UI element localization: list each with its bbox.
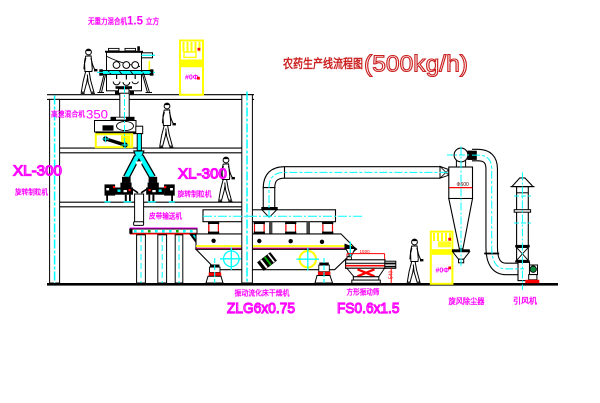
svg-text:无重力混合机: 无重力混合机 (87, 16, 127, 26)
svg-text:旋转制粒机: 旋转制粒机 (14, 187, 48, 197)
svg-text:350: 350 (86, 110, 108, 122)
svg-text:立方: 立方 (146, 16, 160, 26)
svg-text:1.5: 1.5 (127, 16, 144, 28)
svg-text:皮带输送机: 皮带输送机 (148, 211, 182, 221)
svg-text:ZLG6x0.75: ZLG6x0.75 (227, 300, 295, 317)
svg-text:旋风除尘器: 旋风除尘器 (448, 296, 486, 306)
svg-text:#0Φ: #0Φ (185, 75, 199, 82)
svg-text:旋转制粒机: 旋转制粒机 (177, 189, 212, 199)
svg-text:540: 540 (389, 270, 395, 279)
svg-text:XL-300: XL-300 (178, 166, 227, 183)
svg-text:引风机: 引风机 (513, 296, 537, 306)
svg-text:XL-300: XL-300 (13, 163, 62, 180)
svg-text:(500kg/h): (500kg/h) (364, 51, 468, 77)
svg-text:振动流化床干燥机: 振动流化床干燥机 (235, 288, 290, 298)
svg-text:Φ600: Φ600 (457, 182, 470, 188)
svg-text:#0Φ: #0Φ (436, 268, 450, 275)
svg-text:方形振动筛: 方形振动筛 (347, 287, 380, 297)
svg-text:高速混合机: 高速混合机 (51, 109, 85, 119)
svg-text:1500: 1500 (360, 249, 371, 254)
svg-text:农药生产线流程图: 农药生产线流程图 (282, 56, 363, 71)
svg-text:FS0.6x1.5: FS0.6x1.5 (337, 300, 400, 317)
